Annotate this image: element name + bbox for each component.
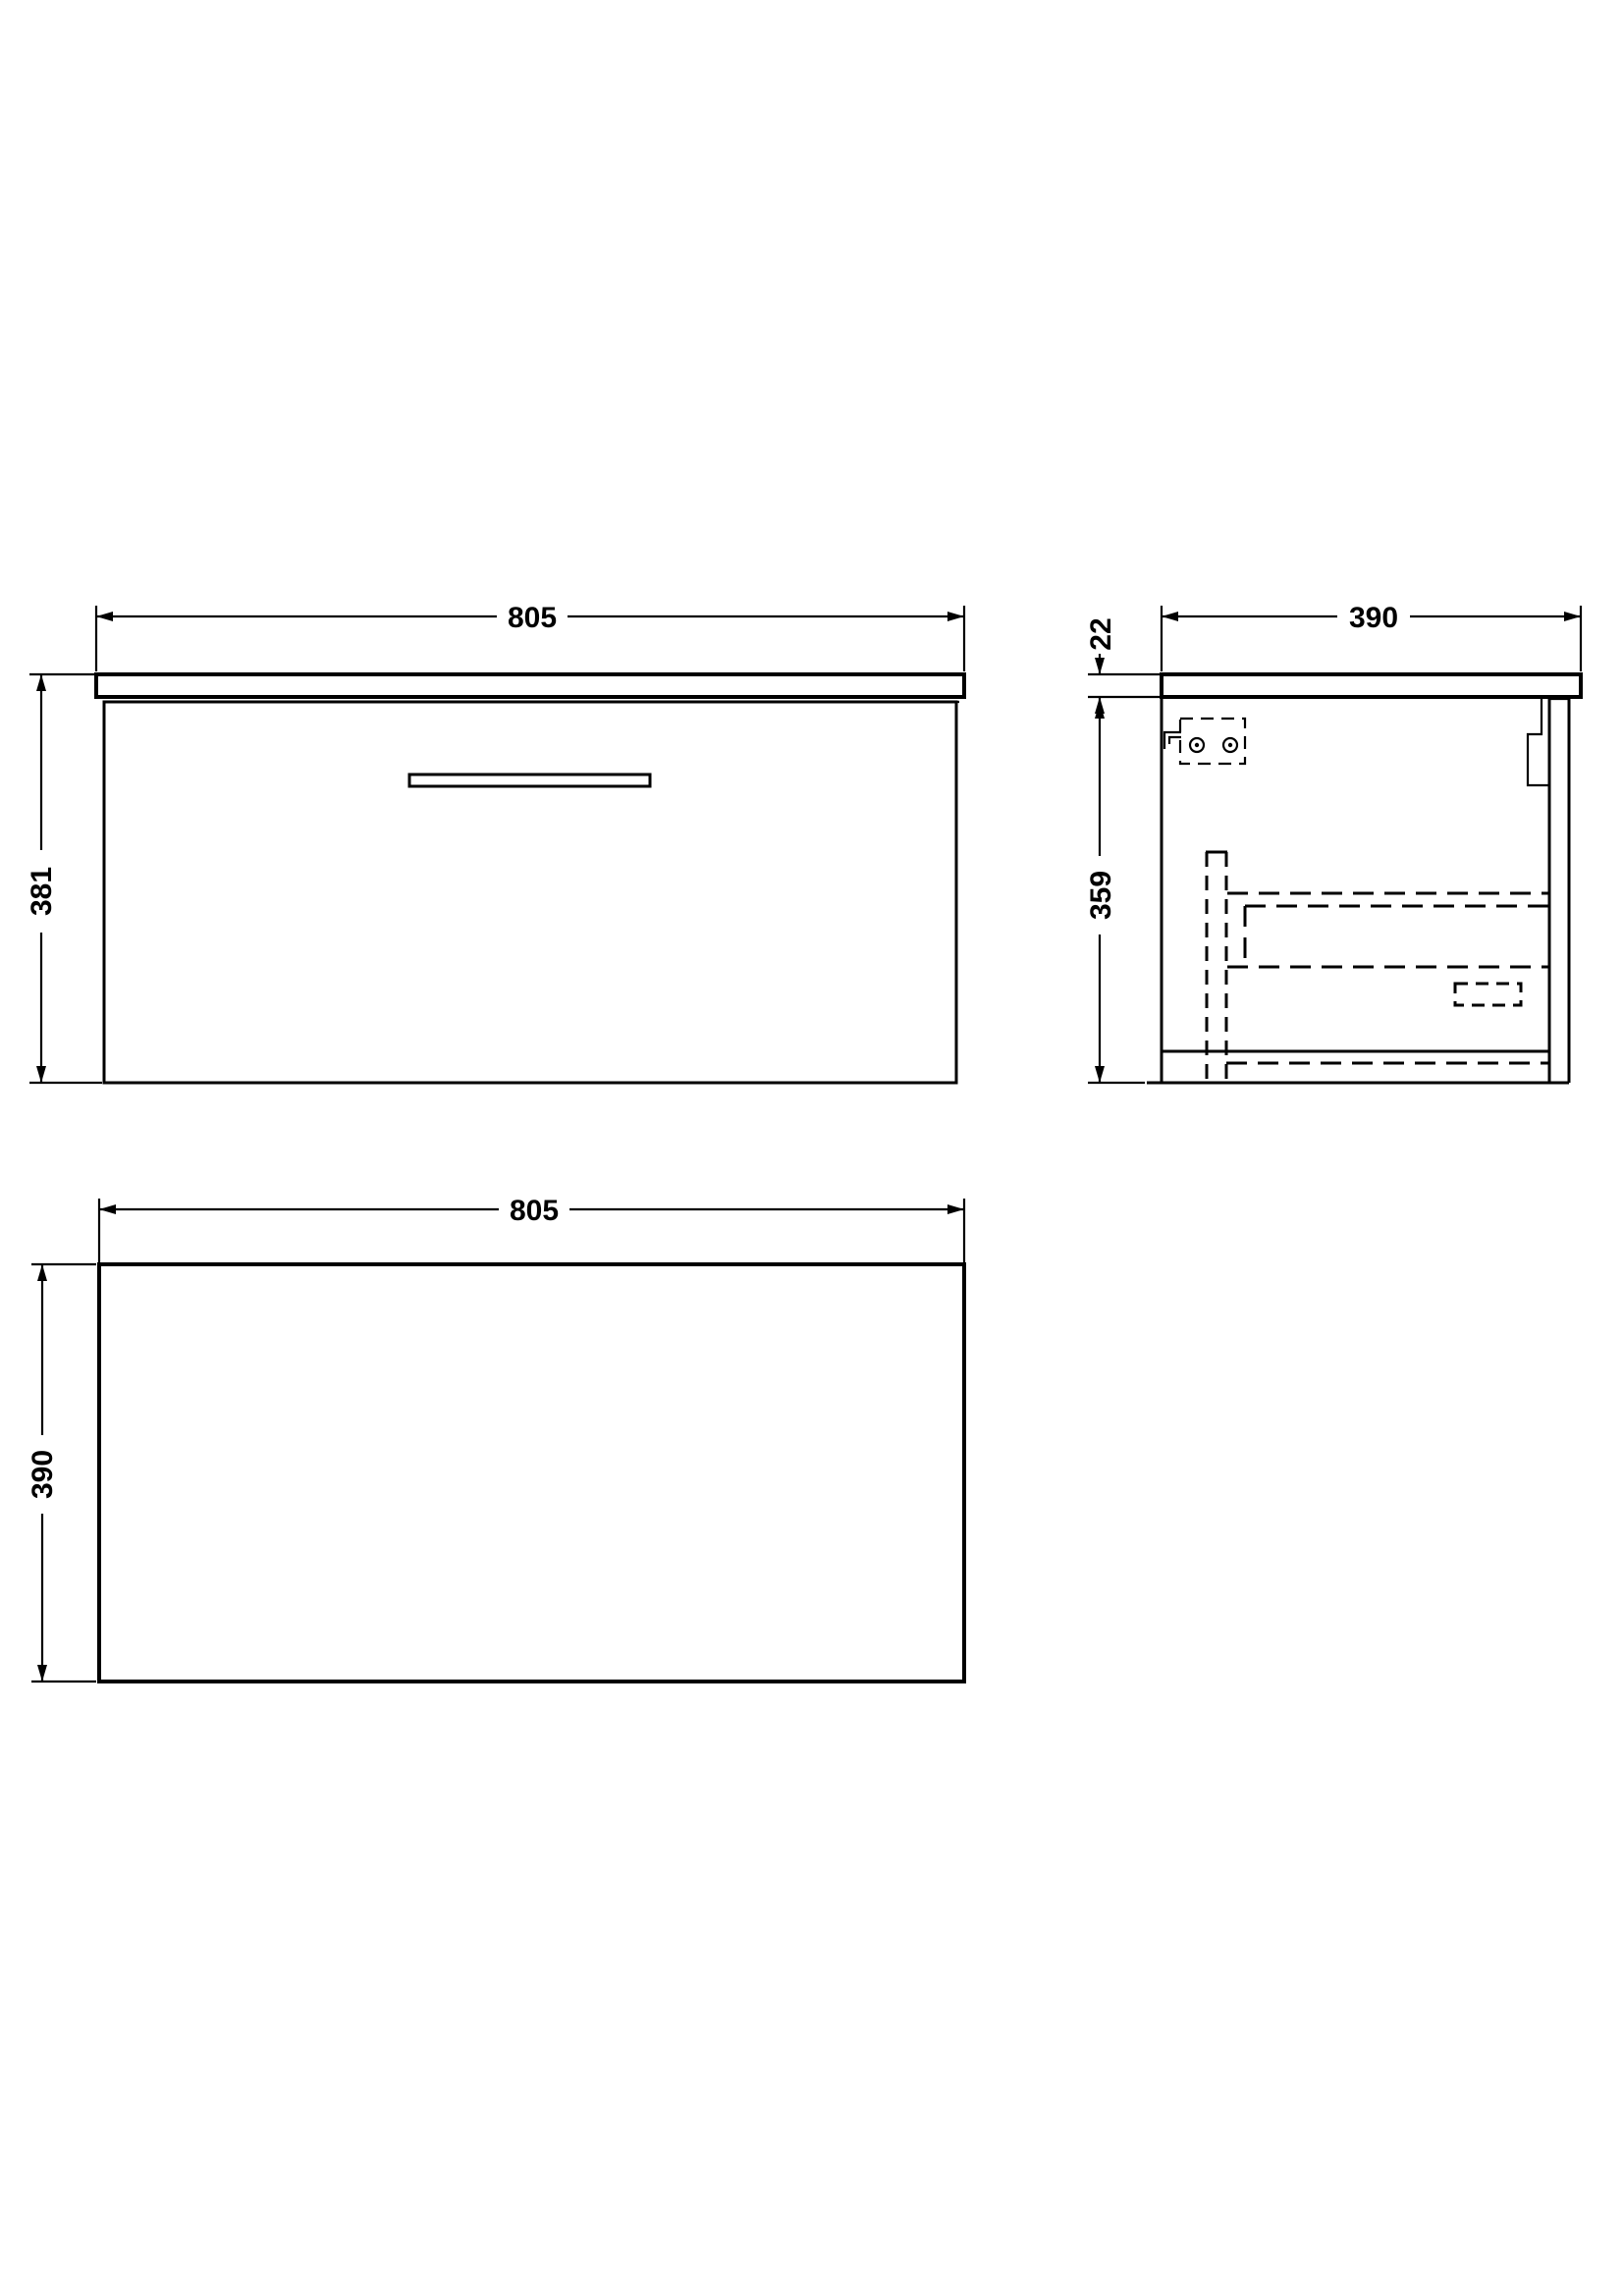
front-width-label: 805 bbox=[508, 602, 557, 634]
front-width-dimension: 805 bbox=[96, 602, 964, 671]
arrowhead-up bbox=[37, 1264, 47, 1281]
worktop-plan-outline bbox=[99, 1264, 964, 1682]
plan-width-dimension: 805 bbox=[99, 1195, 964, 1262]
side-depth-dimension: 390 bbox=[1162, 602, 1581, 671]
arrowhead-down bbox=[1095, 658, 1105, 674]
side-view: 390 22 359 bbox=[1085, 602, 1581, 1083]
front-height-label: 381 bbox=[26, 867, 58, 916]
worktop-front bbox=[96, 674, 964, 697]
drawer-front-panel bbox=[104, 702, 956, 1083]
front-height-dimension: 381 bbox=[26, 674, 102, 1083]
side-carcass-height-dimension: 359 bbox=[1085, 702, 1145, 1083]
arrowhead-down bbox=[37, 1665, 47, 1682]
drawer-handle bbox=[409, 774, 650, 786]
side-worktop-thickness-label: 22 bbox=[1085, 617, 1117, 650]
arrowhead-down bbox=[1095, 1066, 1105, 1083]
plan-depth-label: 390 bbox=[27, 1450, 59, 1499]
arrowhead-right bbox=[947, 1204, 964, 1214]
plan-view: 805 390 bbox=[27, 1195, 964, 1682]
arrowhead-right bbox=[1564, 612, 1581, 621]
plan-depth-dimension: 390 bbox=[27, 1264, 96, 1682]
arrowhead-left bbox=[99, 1204, 116, 1214]
technical-drawing-canvas: 805 381 bbox=[0, 0, 1623, 2296]
arrowhead-right bbox=[947, 612, 964, 621]
side-depth-label: 390 bbox=[1349, 602, 1398, 634]
arrowhead-up bbox=[36, 674, 46, 691]
screw-center bbox=[1195, 743, 1199, 747]
arrowhead-left bbox=[1162, 612, 1178, 621]
arrowhead-down bbox=[36, 1066, 46, 1083]
rear-hanging-bracket-profile bbox=[1528, 699, 1549, 785]
worktop-side bbox=[1162, 674, 1581, 697]
wall-mounting-bracket bbox=[1164, 719, 1245, 764]
drawer-hidden-detail bbox=[1162, 852, 1549, 1082]
front-view: 805 381 bbox=[26, 602, 964, 1083]
arrowhead-left bbox=[96, 612, 113, 621]
bracket-front-tab bbox=[1164, 732, 1181, 749]
drawer-runner-block bbox=[1455, 984, 1521, 1005]
screw-center bbox=[1228, 743, 1232, 747]
side-worktop-thickness-dimension: 22 bbox=[1085, 617, 1160, 716]
side-carcass-height-label: 359 bbox=[1085, 871, 1117, 920]
drawing-sheet: 805 381 bbox=[0, 0, 1623, 2296]
plan-width-label: 805 bbox=[510, 1195, 559, 1227]
